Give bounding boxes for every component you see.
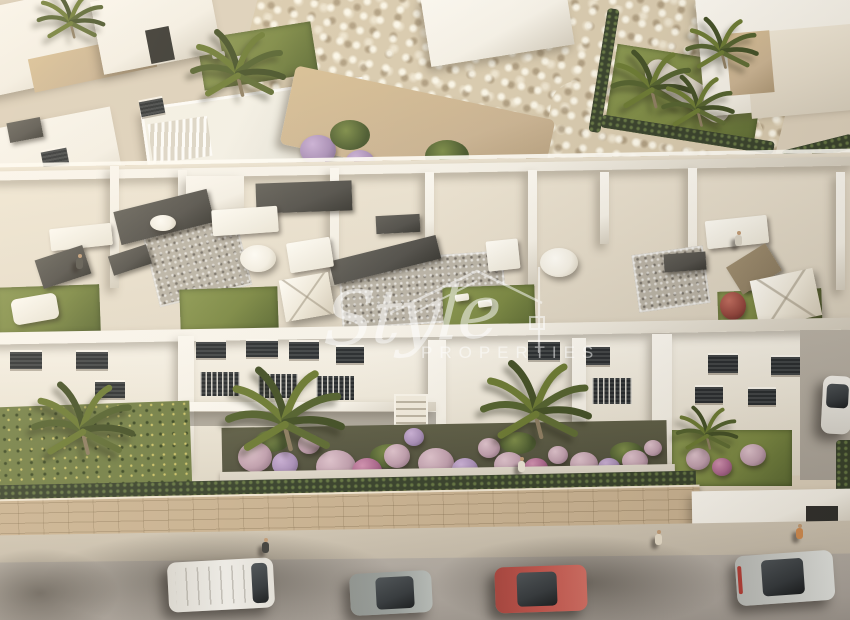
red-car	[494, 564, 588, 613]
pedestrian	[796, 528, 803, 539]
person-on-terrace	[735, 235, 742, 246]
white-round-parasol	[540, 248, 578, 277]
window	[76, 352, 108, 369]
parapet-divider	[528, 170, 537, 286]
palm-tree	[18, 368, 148, 486]
storage-bench	[663, 252, 706, 273]
car-glass	[826, 383, 849, 408]
white-square-parasol	[279, 272, 336, 322]
window	[10, 352, 42, 369]
car-glass	[375, 576, 415, 610]
red-bush	[720, 292, 746, 320]
palm-tree	[210, 352, 360, 486]
window	[748, 389, 776, 405]
outdoor-kitchen	[376, 214, 421, 234]
van-windshield	[251, 563, 269, 604]
gray-hatchback	[349, 570, 433, 616]
car-glass	[761, 558, 805, 597]
palm-tree	[676, 8, 768, 90]
pedestrian	[655, 534, 662, 545]
white-side-car	[821, 375, 850, 434]
round-table	[150, 215, 176, 231]
window	[771, 357, 801, 375]
tree-shadow	[0, 548, 120, 620]
person-on-walkway	[518, 461, 525, 472]
person-on-terrace	[76, 258, 83, 269]
dining-set-white	[486, 238, 521, 271]
silver-car	[734, 550, 835, 607]
flower-shrub	[644, 440, 662, 456]
flower-shrub	[404, 428, 424, 446]
tail-light	[737, 566, 743, 594]
car-glass	[516, 571, 557, 606]
flower-shrub	[384, 444, 410, 468]
pedestrian	[262, 542, 269, 553]
planter-foliage	[330, 120, 370, 150]
palm-tree	[178, 18, 298, 124]
van-roof-ribs	[175, 565, 249, 607]
parapet-divider	[600, 172, 609, 244]
terrace-lawn	[179, 286, 278, 331]
white-round-parasol	[240, 245, 276, 272]
render-scene: Style PROPERTIES	[0, 0, 850, 620]
white-van	[167, 557, 275, 612]
parapet-divider	[836, 172, 845, 290]
palm-tree	[668, 398, 746, 468]
window	[708, 355, 738, 373]
palm-tree	[466, 346, 606, 472]
lounge-sofa-set	[211, 206, 279, 237]
palm-tree	[28, 0, 114, 58]
